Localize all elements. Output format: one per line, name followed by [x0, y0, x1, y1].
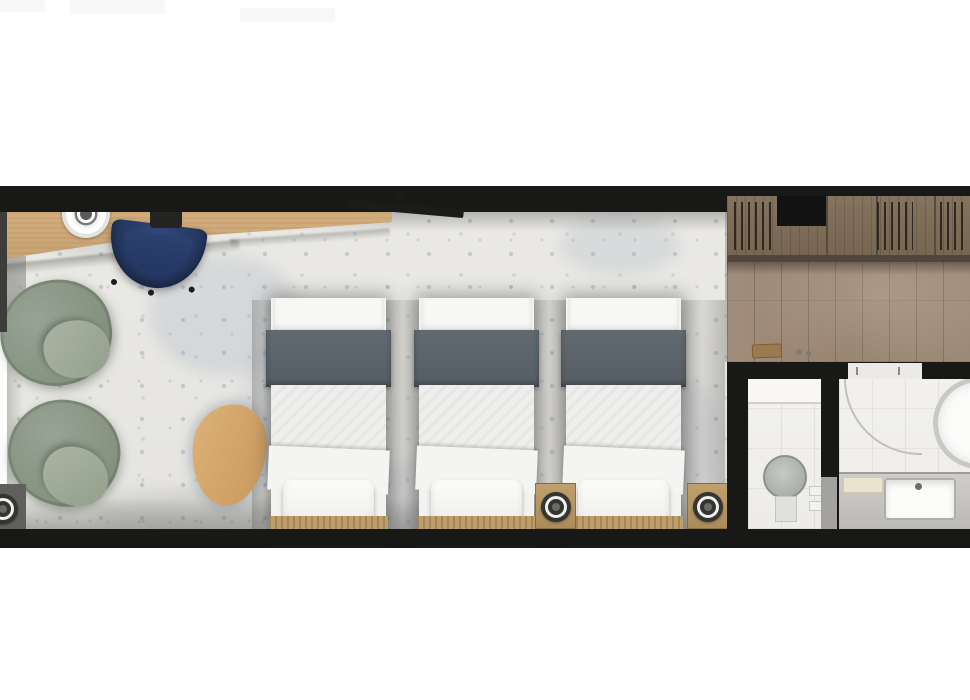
wall-bottom [0, 529, 970, 548]
desk-chair-seat [121, 230, 193, 276]
wall-left [0, 212, 7, 332]
nightstand-cropped [0, 484, 26, 534]
door-swing-arc [844, 379, 922, 457]
chair-leg [188, 286, 195, 293]
lamp-icon [693, 492, 723, 522]
threshold-tick [856, 367, 858, 375]
bed [271, 298, 386, 529]
wardrobe-front-edge [727, 255, 970, 262]
cropped-fragment [70, 0, 165, 14]
bed-runner [414, 330, 539, 387]
chair-leg [148, 289, 155, 296]
wardrobe-divider [826, 196, 828, 262]
hangers-icon [940, 202, 966, 250]
bed-headboard [269, 516, 388, 529]
wc-wall-left [727, 362, 748, 529]
floor-plan [0, 0, 970, 700]
desk-chair [104, 218, 208, 301]
bed-runner [266, 330, 391, 387]
nightstand [535, 483, 576, 529]
toilet-icon [763, 455, 807, 499]
bed-runner [561, 330, 686, 387]
wardrobe-shadow [727, 261, 970, 275]
shoe [796, 349, 802, 355]
bath-mat [843, 477, 883, 493]
wardrobe-niche [777, 196, 827, 226]
tv-mount-arm [396, 193, 404, 203]
bed-foot-linen [273, 298, 384, 332]
luggage-tray [752, 343, 782, 358]
hangers-icon [877, 202, 913, 250]
toilet-tank [775, 496, 797, 522]
threshold-tick [898, 367, 900, 375]
cropped-fragment [0, 0, 45, 12]
hangers-icon [734, 202, 776, 250]
lamp-icon [0, 494, 18, 524]
lamp-icon [541, 492, 571, 522]
bed-headboard [564, 516, 683, 529]
floor-marbling [560, 215, 680, 275]
shoe [806, 351, 811, 356]
wc-door [821, 474, 837, 529]
bed [419, 298, 534, 529]
bath-wall-top-right [922, 362, 970, 379]
arc [844, 379, 922, 455]
bed [566, 298, 681, 529]
faucet-icon [915, 483, 922, 490]
wardrobe-divider [934, 196, 936, 262]
chair-leg [111, 279, 118, 286]
bed-foot-linen [421, 298, 532, 332]
bed-headboard [417, 516, 536, 529]
desk-chair-back [105, 218, 208, 293]
door-threshold [848, 363, 922, 379]
nightstand [687, 483, 728, 529]
cropped-fragment [240, 8, 335, 22]
wc-wall-right [821, 362, 838, 477]
wc-shelf [748, 379, 821, 404]
wardrobe [727, 196, 970, 262]
bed-foot-linen [568, 298, 679, 332]
